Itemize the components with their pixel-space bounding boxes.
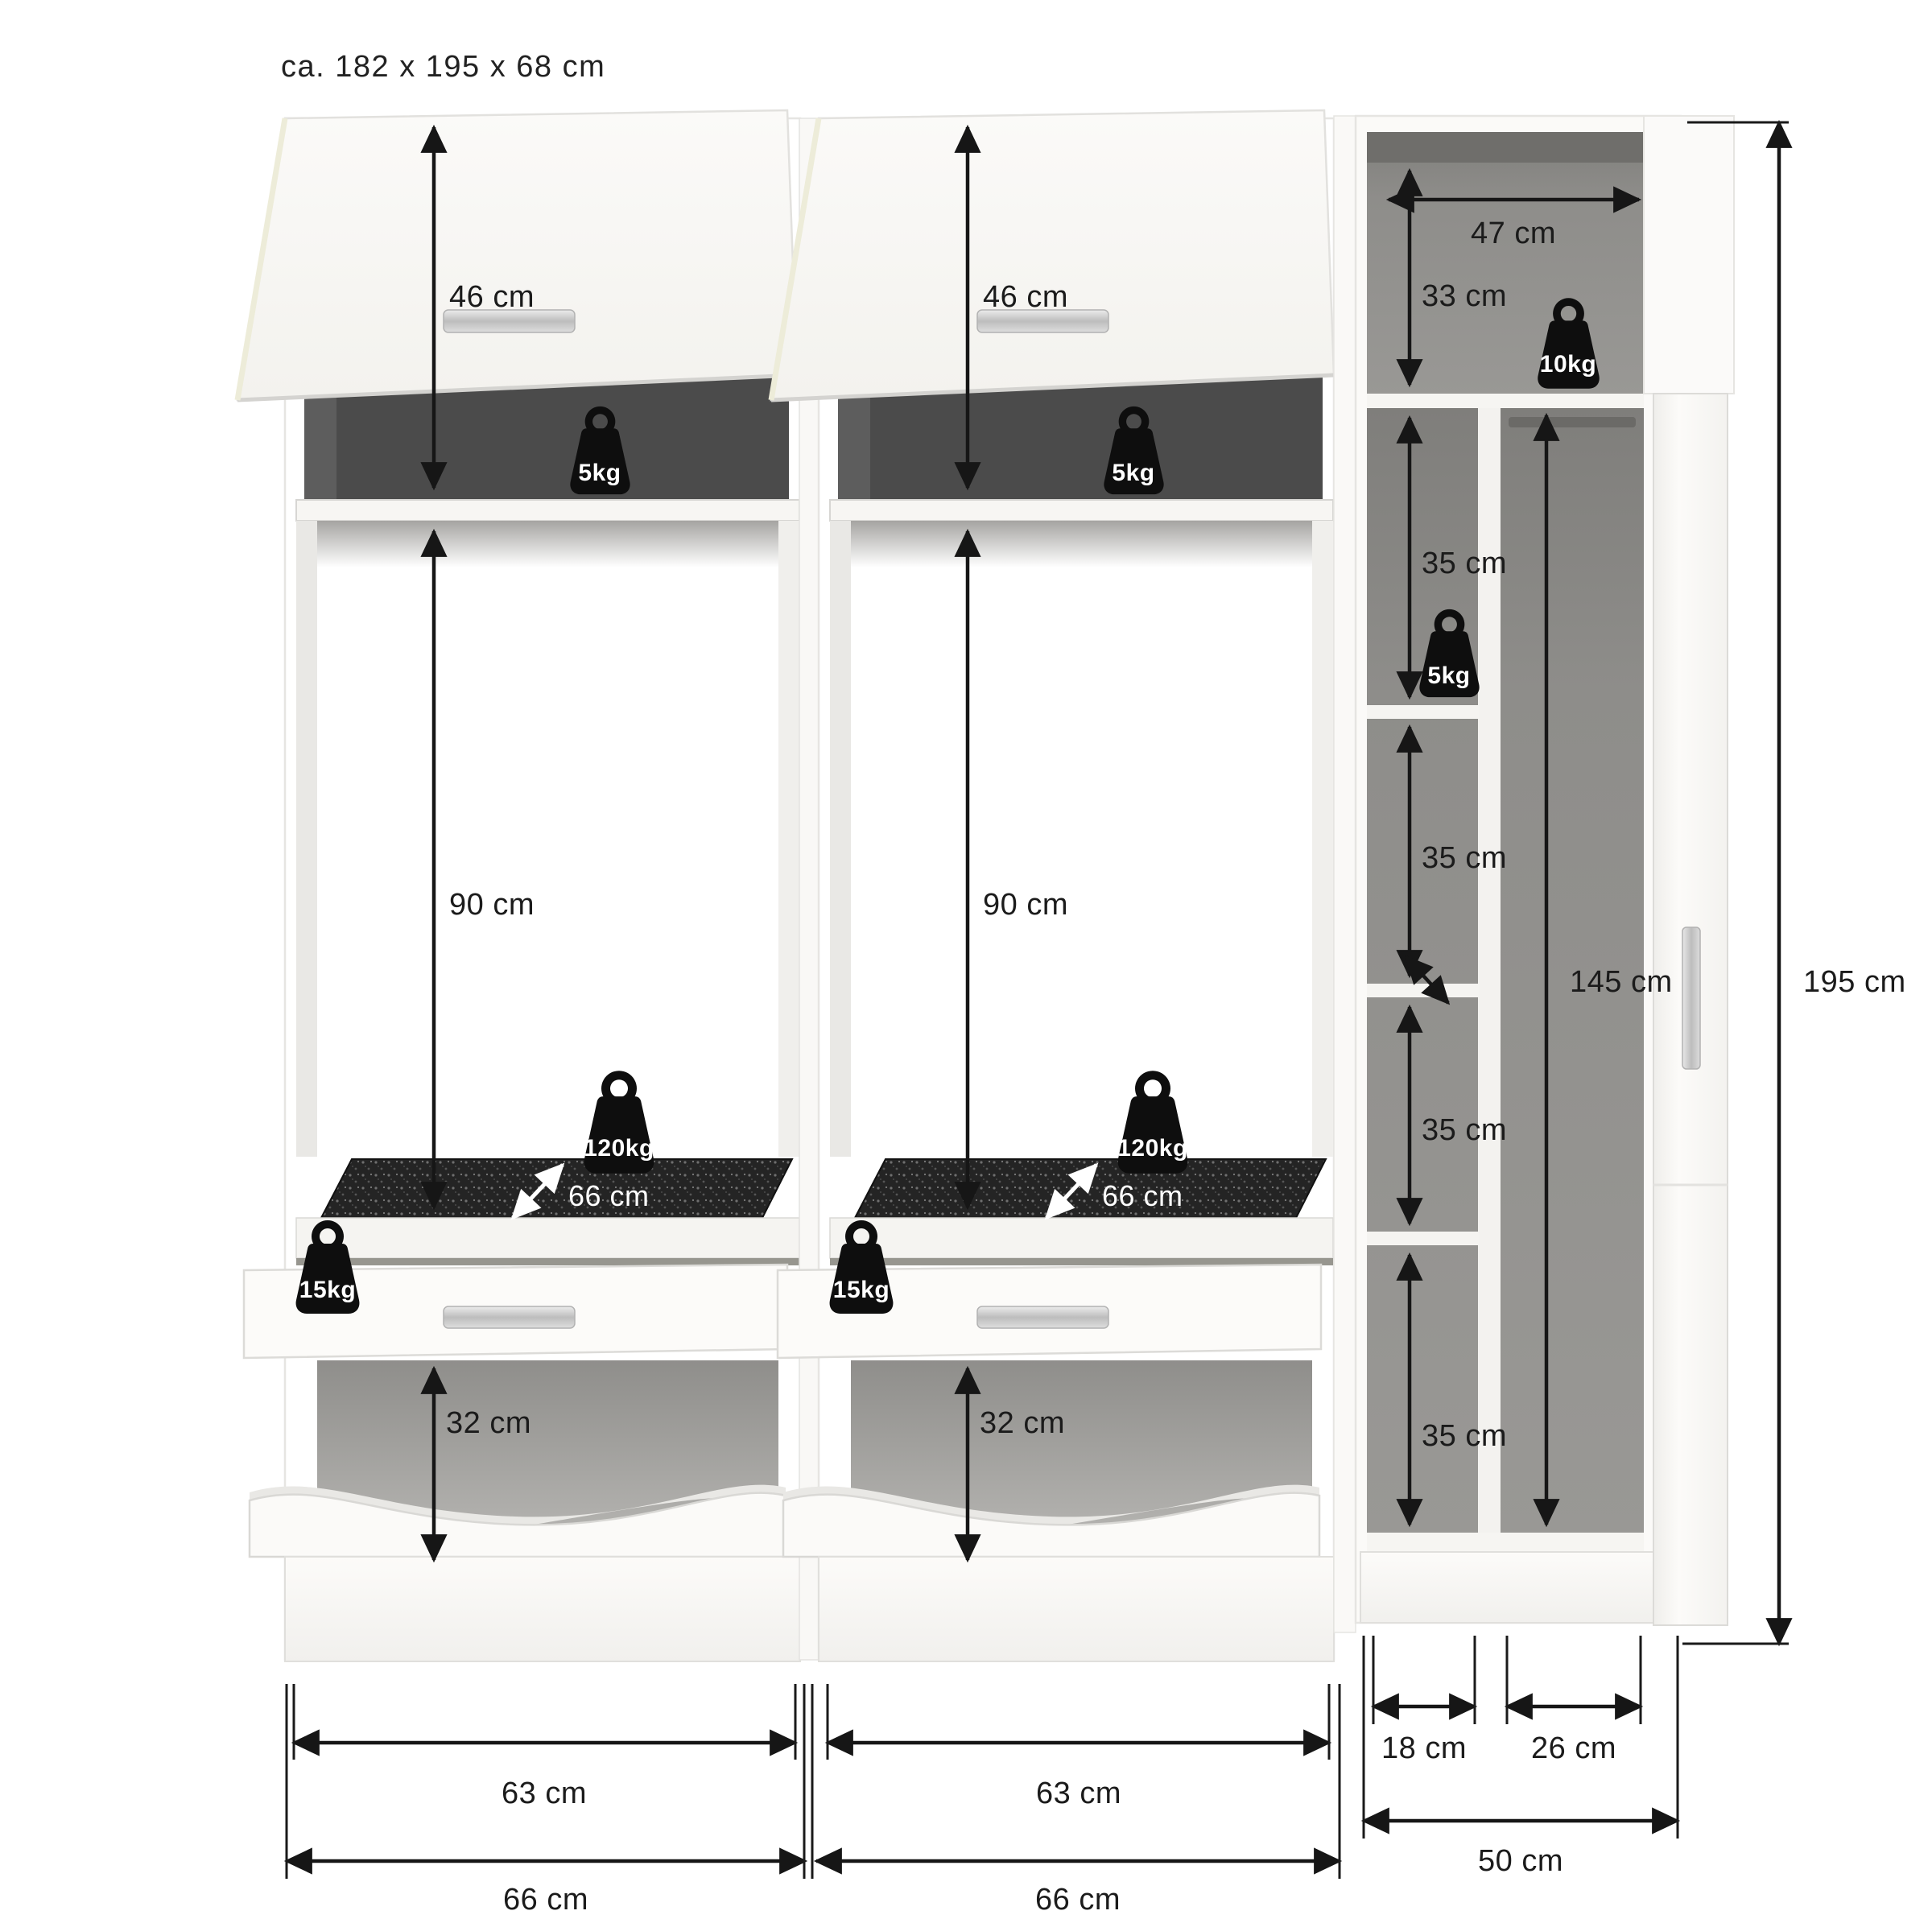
right-top-side-panel	[1644, 116, 1734, 394]
right-compartment-4-label: 35 cm	[1422, 1419, 1507, 1453]
left-shelf-depth-label: 66 cm	[568, 1179, 650, 1212]
right-top-niche-width-label: 47 cm	[1471, 217, 1556, 250]
overall-height-label: 195 cm	[1803, 965, 1906, 999]
diagram-svg: 5kg 5kg 10kg 5kg 120kg 120kg 15kg 15kg	[0, 0, 1932, 1919]
middle-shelf-depth-label: 66 cm	[1102, 1179, 1183, 1212]
right-col2-width-label: 26 cm	[1531, 1731, 1616, 1765]
right-bottom-floor	[1367, 1533, 1644, 1552]
middle-outer-width-label: 66 cm	[1035, 1883, 1121, 1917]
middle-bin-niche-label: 32 cm	[980, 1406, 1065, 1440]
left-appliance-shelf-load-label: 120kg	[584, 1135, 654, 1162]
unit-separator-middle-right	[1334, 116, 1356, 1632]
middle-flap-height-label: 46 cm	[983, 280, 1068, 314]
middle-top-shelf-load-label: 5kg	[1112, 460, 1154, 486]
right-compartment-1-label: 35 cm	[1422, 547, 1507, 580]
right-top-niche-floor	[1367, 394, 1644, 408]
middle-appliance-shelf-load-label: 120kg	[1117, 1135, 1188, 1162]
right-top-niche-height-label: 33 cm	[1422, 279, 1507, 313]
left-bin-niche-label: 32 cm	[446, 1406, 531, 1440]
left-appliance-shelf-edge	[296, 1218, 799, 1258]
right-plinth	[1360, 1552, 1681, 1623]
left-top-shelf-load-label: 5kg	[578, 460, 621, 486]
right-compartment-2-label: 35 cm	[1422, 841, 1507, 875]
left-niche-height-label: 90 cm	[449, 888, 535, 922]
right-shelf-3	[1367, 1232, 1480, 1245]
middle-shelf-underside-shadow	[840, 521, 1323, 567]
left-flap-door	[237, 110, 797, 400]
middle-drawer-load-label: 15kg	[833, 1277, 890, 1303]
middle-side-wall-left	[830, 521, 851, 1157]
right-top-niche-ceiling	[1367, 132, 1644, 163]
left-plinth	[285, 1557, 800, 1661]
right-shelf-1	[1367, 705, 1480, 719]
hanging-rod	[1509, 417, 1636, 427]
left-top-shelf	[296, 500, 799, 521]
furniture-dimension-diagram: 5kg 5kg 10kg 5kg 120kg 120kg 15kg 15kg	[0, 0, 1932, 1919]
left-drawer-handle	[444, 1306, 575, 1328]
left-anti-slip-mat	[321, 1159, 792, 1218]
middle-anti-slip-mat	[855, 1159, 1326, 1218]
left-flap-height-label: 46 cm	[449, 280, 535, 314]
middle-appliance-shelf-edge	[830, 1218, 1333, 1258]
right-col1-width-label: 18 cm	[1381, 1731, 1467, 1765]
right-door-handle	[1682, 927, 1700, 1069]
right-compartment-3-label: 35 cm	[1422, 1113, 1507, 1147]
right-shelf-load-label: 5kg	[1427, 662, 1470, 689]
left-outer-width-label: 66 cm	[503, 1883, 588, 1917]
right-shelf-2	[1367, 984, 1480, 997]
left-shelf-underside-shadow	[306, 521, 790, 567]
middle-niche-height-label: 90 cm	[983, 888, 1068, 922]
right-top-niche-load-label: 10kg	[1540, 351, 1596, 378]
page-title: ca. 182 x 195 x 68 cm	[281, 50, 605, 84]
middle-flap-door	[771, 110, 1334, 400]
middle-plinth	[819, 1557, 1334, 1661]
right-outer-width-label: 50 cm	[1478, 1844, 1563, 1878]
middle-side-wall-right	[1312, 521, 1333, 1157]
left-inner-width-label: 63 cm	[502, 1777, 587, 1810]
middle-inner-width-label: 63 cm	[1036, 1777, 1121, 1810]
middle-top-shelf	[830, 500, 1333, 521]
left-side-wall-right	[778, 521, 799, 1157]
hanging-height-label: 145 cm	[1570, 965, 1673, 999]
left-side-wall-left	[296, 521, 317, 1157]
middle-drawer-handle	[977, 1306, 1108, 1328]
left-drawer-load-label: 15kg	[299, 1277, 356, 1303]
